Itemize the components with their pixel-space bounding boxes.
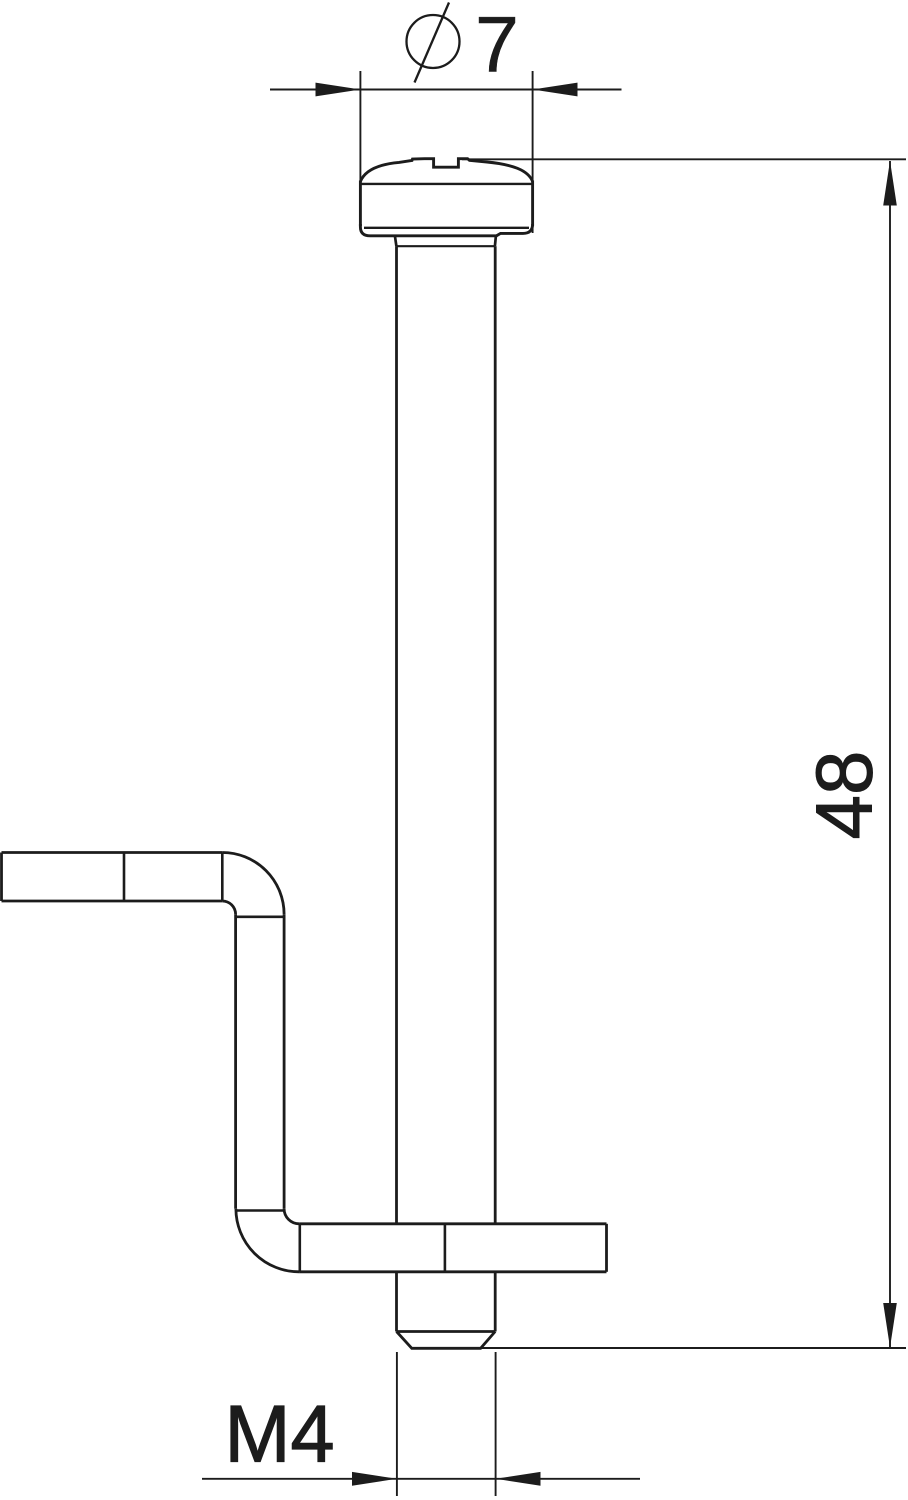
- svg-text:7: 7: [475, 0, 519, 89]
- svg-text:M4: M4: [225, 1390, 335, 1480]
- svg-text:48: 48: [800, 751, 889, 840]
